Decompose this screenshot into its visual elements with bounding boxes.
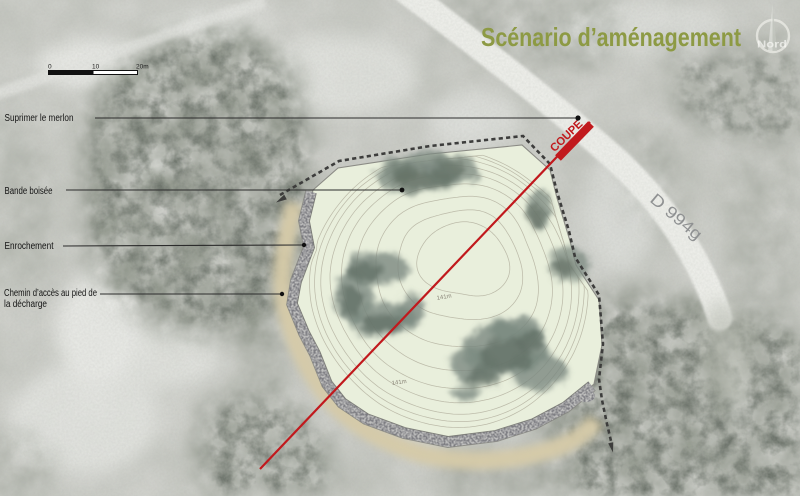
svg-text:Nord: Nord [757, 39, 787, 51]
svg-text:Chemin d’accès au pied de: Chemin d’accès au pied de [4, 288, 97, 299]
svg-text:Scénario d’aménagement: Scénario d’aménagement [481, 22, 741, 52]
svg-text:la décharge: la décharge [4, 299, 47, 310]
svg-text:0: 0 [48, 64, 52, 71]
svg-text:Suprimer le merlon: Suprimer le merlon [5, 113, 74, 124]
svg-text:Enrochement: Enrochement [5, 241, 54, 252]
svg-text:20m: 20m [136, 64, 149, 71]
svg-text:Bande boisée: Bande boisée [5, 186, 53, 197]
svg-text:10: 10 [92, 64, 100, 71]
